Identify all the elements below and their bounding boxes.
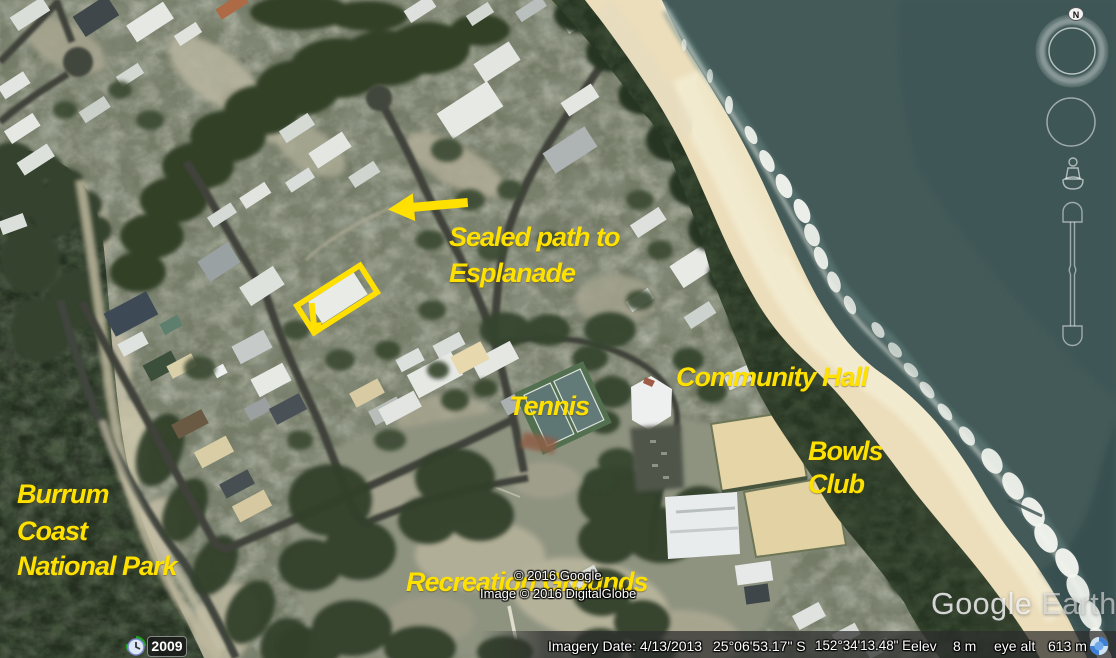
- svg-text:N: N: [1073, 10, 1080, 20]
